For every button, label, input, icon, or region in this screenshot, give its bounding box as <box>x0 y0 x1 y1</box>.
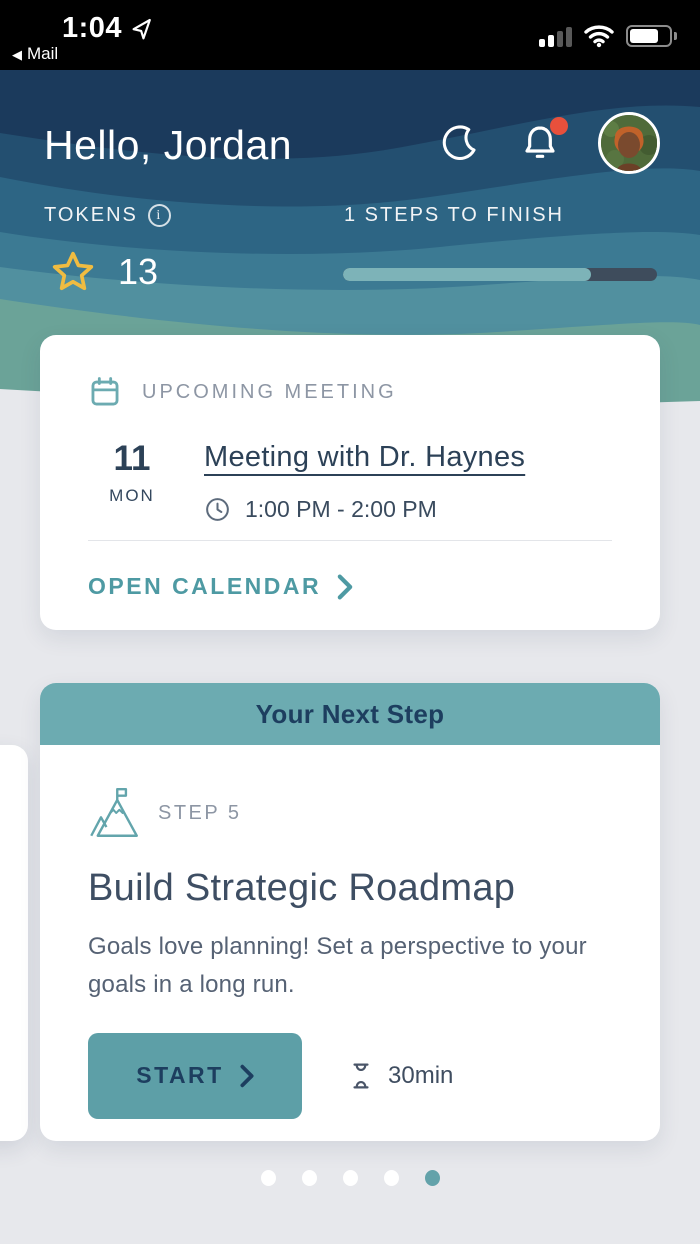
notifications-button[interactable] <box>518 121 562 165</box>
chevron-right-icon <box>240 1064 254 1088</box>
notification-badge <box>550 117 568 135</box>
back-arrow-icon: ◀ <box>12 48 22 61</box>
tokens-value: 13 <box>118 251 158 293</box>
status-indicators <box>539 24 672 48</box>
dark-mode-toggle[interactable] <box>438 121 482 165</box>
next-step-card-header: Your Next Step <box>40 683 660 745</box>
status-bar: 1:04 ◀ Mail <box>0 0 700 70</box>
card-divider <box>88 540 612 541</box>
step-title: Build Strategic Roadmap <box>88 867 612 910</box>
progress-fill <box>343 268 591 281</box>
clock-icon <box>204 496 231 523</box>
step-description: Goals love planning! Set a perspective t… <box>88 928 636 1005</box>
step-label: STEP 5 <box>158 802 242 825</box>
status-time-label: 1:04 <box>62 12 122 45</box>
battery-icon <box>626 25 672 47</box>
avatar[interactable] <box>598 112 660 174</box>
back-to-app[interactable]: ◀ Mail <box>12 44 58 64</box>
avatar-photo <box>601 115 657 171</box>
location-arrow-icon <box>130 17 154 41</box>
wifi-icon <box>584 24 614 48</box>
carousel-dot-1[interactable] <box>261 1170 276 1186</box>
meeting-date-weekday: MON <box>88 486 176 506</box>
open-calendar-label: OPEN CALENDAR <box>88 573 321 600</box>
app-screen: 1:04 ◀ Mail <box>0 0 700 1244</box>
steps-progress-bar <box>343 268 657 281</box>
meeting-time-range: 1:00 PM - 2:00 PM <box>245 496 437 523</box>
greeting-title: Hello, Jordan <box>44 122 292 169</box>
status-time: 1:04 <box>62 12 154 45</box>
carousel-dot-2[interactable] <box>302 1170 317 1186</box>
calendar-icon <box>88 375 122 409</box>
step-duration-label: 30min <box>388 1062 453 1090</box>
open-calendar-link[interactable]: OPEN CALENDAR <box>88 573 353 600</box>
start-button-label: START <box>136 1062 223 1089</box>
tokens-label: TOKENS <box>44 204 138 227</box>
carousel-dot-4[interactable] <box>384 1170 399 1186</box>
meeting-title-link[interactable]: Meeting with Dr. Haynes <box>204 441 525 473</box>
step-duration: 30min <box>348 1060 453 1092</box>
meeting-date: 11 MON <box>88 441 176 523</box>
moon-icon <box>439 122 481 164</box>
meeting-date-day: 11 <box>88 441 176 476</box>
carousel-dot-3[interactable] <box>343 1170 358 1186</box>
next-step-card: Your Next Step STEP 5 Build Strategic Ro… <box>40 683 660 1141</box>
steps-label: 1 STEPS TO FINISH <box>344 204 564 227</box>
mountain-flag-icon <box>88 785 140 841</box>
chevron-right-icon <box>337 574 353 600</box>
start-button[interactable]: START <box>88 1033 302 1119</box>
previous-step-card-peek[interactable] <box>0 745 28 1141</box>
cellular-signal-icon <box>539 25 572 47</box>
carousel-dot-5[interactable] <box>425 1170 440 1186</box>
carousel-dots <box>0 1170 700 1186</box>
meeting-card-label: UPCOMING MEETING <box>142 381 397 404</box>
info-icon[interactable]: i <box>148 204 171 227</box>
star-icon <box>50 250 96 294</box>
back-app-label: Mail <box>27 44 58 64</box>
tokens-label-row: TOKENS i <box>44 204 171 227</box>
upcoming-meeting-card: UPCOMING MEETING 11 MON Meeting with Dr.… <box>40 335 660 630</box>
hourglass-icon <box>348 1060 374 1092</box>
